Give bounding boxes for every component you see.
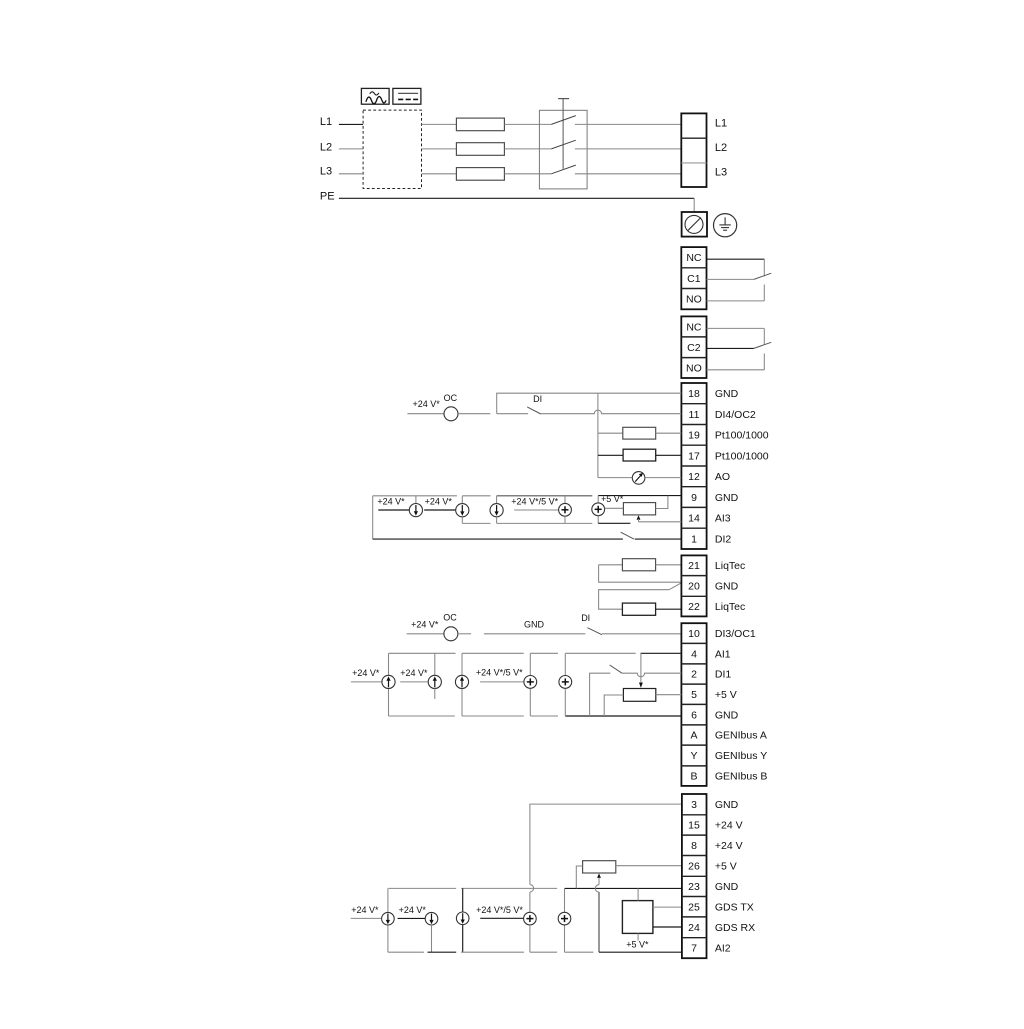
svg-text:DI: DI xyxy=(581,613,590,623)
svg-text:26: 26 xyxy=(688,861,700,873)
svg-text:+24 V*: +24 V* xyxy=(351,905,379,915)
svg-text:GND: GND xyxy=(715,581,739,593)
svg-text:AI3: AI3 xyxy=(715,513,731,525)
svg-text:24: 24 xyxy=(688,922,700,934)
svg-text:22: 22 xyxy=(688,601,700,613)
svg-text:23: 23 xyxy=(688,881,700,893)
svg-text:8: 8 xyxy=(691,840,697,852)
svg-text:+24 V*: +24 V* xyxy=(399,905,427,915)
svg-text:+24 V*/5 V*: +24 V*/5 V* xyxy=(476,905,523,915)
svg-text:4: 4 xyxy=(691,648,697,660)
svg-text:OC: OC xyxy=(444,393,458,403)
svg-text:17: 17 xyxy=(688,450,700,462)
svg-text:L2: L2 xyxy=(715,142,727,154)
svg-text:GND: GND xyxy=(524,620,545,630)
svg-text:7: 7 xyxy=(691,943,697,955)
svg-text:Pt100/1000: Pt100/1000 xyxy=(715,450,769,462)
svg-text:B: B xyxy=(690,771,697,783)
svg-text:9: 9 xyxy=(691,492,697,504)
svg-text:+24 V*: +24 V* xyxy=(400,668,428,678)
svg-text:OC: OC xyxy=(443,613,457,623)
svg-text:GENIbus A: GENIbus A xyxy=(715,730,767,742)
svg-text:+5 V: +5 V xyxy=(715,689,737,701)
svg-text:GND: GND xyxy=(715,799,739,811)
svg-text:NO: NO xyxy=(686,363,702,375)
svg-text:+24 V: +24 V xyxy=(715,820,743,832)
svg-text:AI2: AI2 xyxy=(715,943,731,955)
svg-text:L3: L3 xyxy=(320,166,332,178)
svg-text:Y: Y xyxy=(690,750,697,762)
svg-text:GND: GND xyxy=(715,492,739,504)
svg-text:+5 V*: +5 V* xyxy=(601,494,624,504)
svg-text:+24 V*: +24 V* xyxy=(425,496,453,506)
svg-text:1: 1 xyxy=(691,533,697,545)
svg-text:18: 18 xyxy=(688,388,700,400)
svg-text:NO: NO xyxy=(686,294,702,306)
svg-text:NC: NC xyxy=(686,321,702,333)
svg-text:Pt100/1000: Pt100/1000 xyxy=(715,430,769,442)
svg-text:19: 19 xyxy=(688,430,700,442)
svg-text:AO: AO xyxy=(715,471,730,483)
svg-text:+24 V: +24 V xyxy=(715,840,743,852)
svg-text:15: 15 xyxy=(688,820,700,832)
svg-text:L1: L1 xyxy=(320,116,332,128)
svg-text:L2: L2 xyxy=(320,142,332,154)
svg-text:DI1: DI1 xyxy=(715,669,732,681)
svg-text:+24 V*: +24 V* xyxy=(352,668,380,678)
svg-text:AI1: AI1 xyxy=(715,648,731,660)
svg-text:GDS RX: GDS RX xyxy=(715,922,755,934)
svg-text:GND: GND xyxy=(715,388,739,400)
svg-text:GND: GND xyxy=(715,709,739,721)
svg-text:C2: C2 xyxy=(687,342,701,354)
svg-text:21: 21 xyxy=(688,560,700,572)
svg-text:DI2: DI2 xyxy=(715,533,732,545)
svg-text:+24 V*: +24 V* xyxy=(412,399,440,409)
svg-text:+24 V*/5 V*: +24 V*/5 V* xyxy=(511,496,558,506)
svg-text:2: 2 xyxy=(691,669,697,681)
svg-text:L3: L3 xyxy=(715,166,727,178)
svg-text:+24 V*/5 V*: +24 V*/5 V* xyxy=(476,668,523,678)
svg-text:25: 25 xyxy=(688,901,700,913)
svg-text:GENIbus Y: GENIbus Y xyxy=(715,750,767,762)
svg-text:GND: GND xyxy=(715,881,739,893)
svg-text:12: 12 xyxy=(688,471,700,483)
svg-text:GENIbus B: GENIbus B xyxy=(715,771,768,783)
svg-text:DI3/OC1: DI3/OC1 xyxy=(715,628,756,640)
svg-text:PE: PE xyxy=(320,190,335,202)
svg-text:+5 V: +5 V xyxy=(715,861,737,873)
svg-text:11: 11 xyxy=(689,409,700,421)
svg-text:L1: L1 xyxy=(715,117,727,129)
svg-text:+24 V*: +24 V* xyxy=(411,620,439,630)
svg-text:LiqTec: LiqTec xyxy=(715,560,745,572)
svg-text:3: 3 xyxy=(691,799,697,811)
svg-text:C1: C1 xyxy=(687,273,701,285)
svg-text:6: 6 xyxy=(691,709,697,721)
svg-text:20: 20 xyxy=(688,581,700,593)
svg-text:+5 V*: +5 V* xyxy=(626,939,649,949)
svg-text:DI4/OC2: DI4/OC2 xyxy=(715,409,756,421)
svg-text:A: A xyxy=(690,730,697,742)
svg-text:DI: DI xyxy=(533,394,542,404)
svg-text:NC: NC xyxy=(686,252,702,264)
svg-text:GDS TX: GDS TX xyxy=(715,901,754,913)
svg-text:+24 V*: +24 V* xyxy=(377,496,405,506)
svg-text:14: 14 xyxy=(688,513,700,525)
svg-text:10: 10 xyxy=(688,628,700,640)
svg-text:LiqTec: LiqTec xyxy=(715,601,745,613)
svg-text:5: 5 xyxy=(691,689,697,701)
